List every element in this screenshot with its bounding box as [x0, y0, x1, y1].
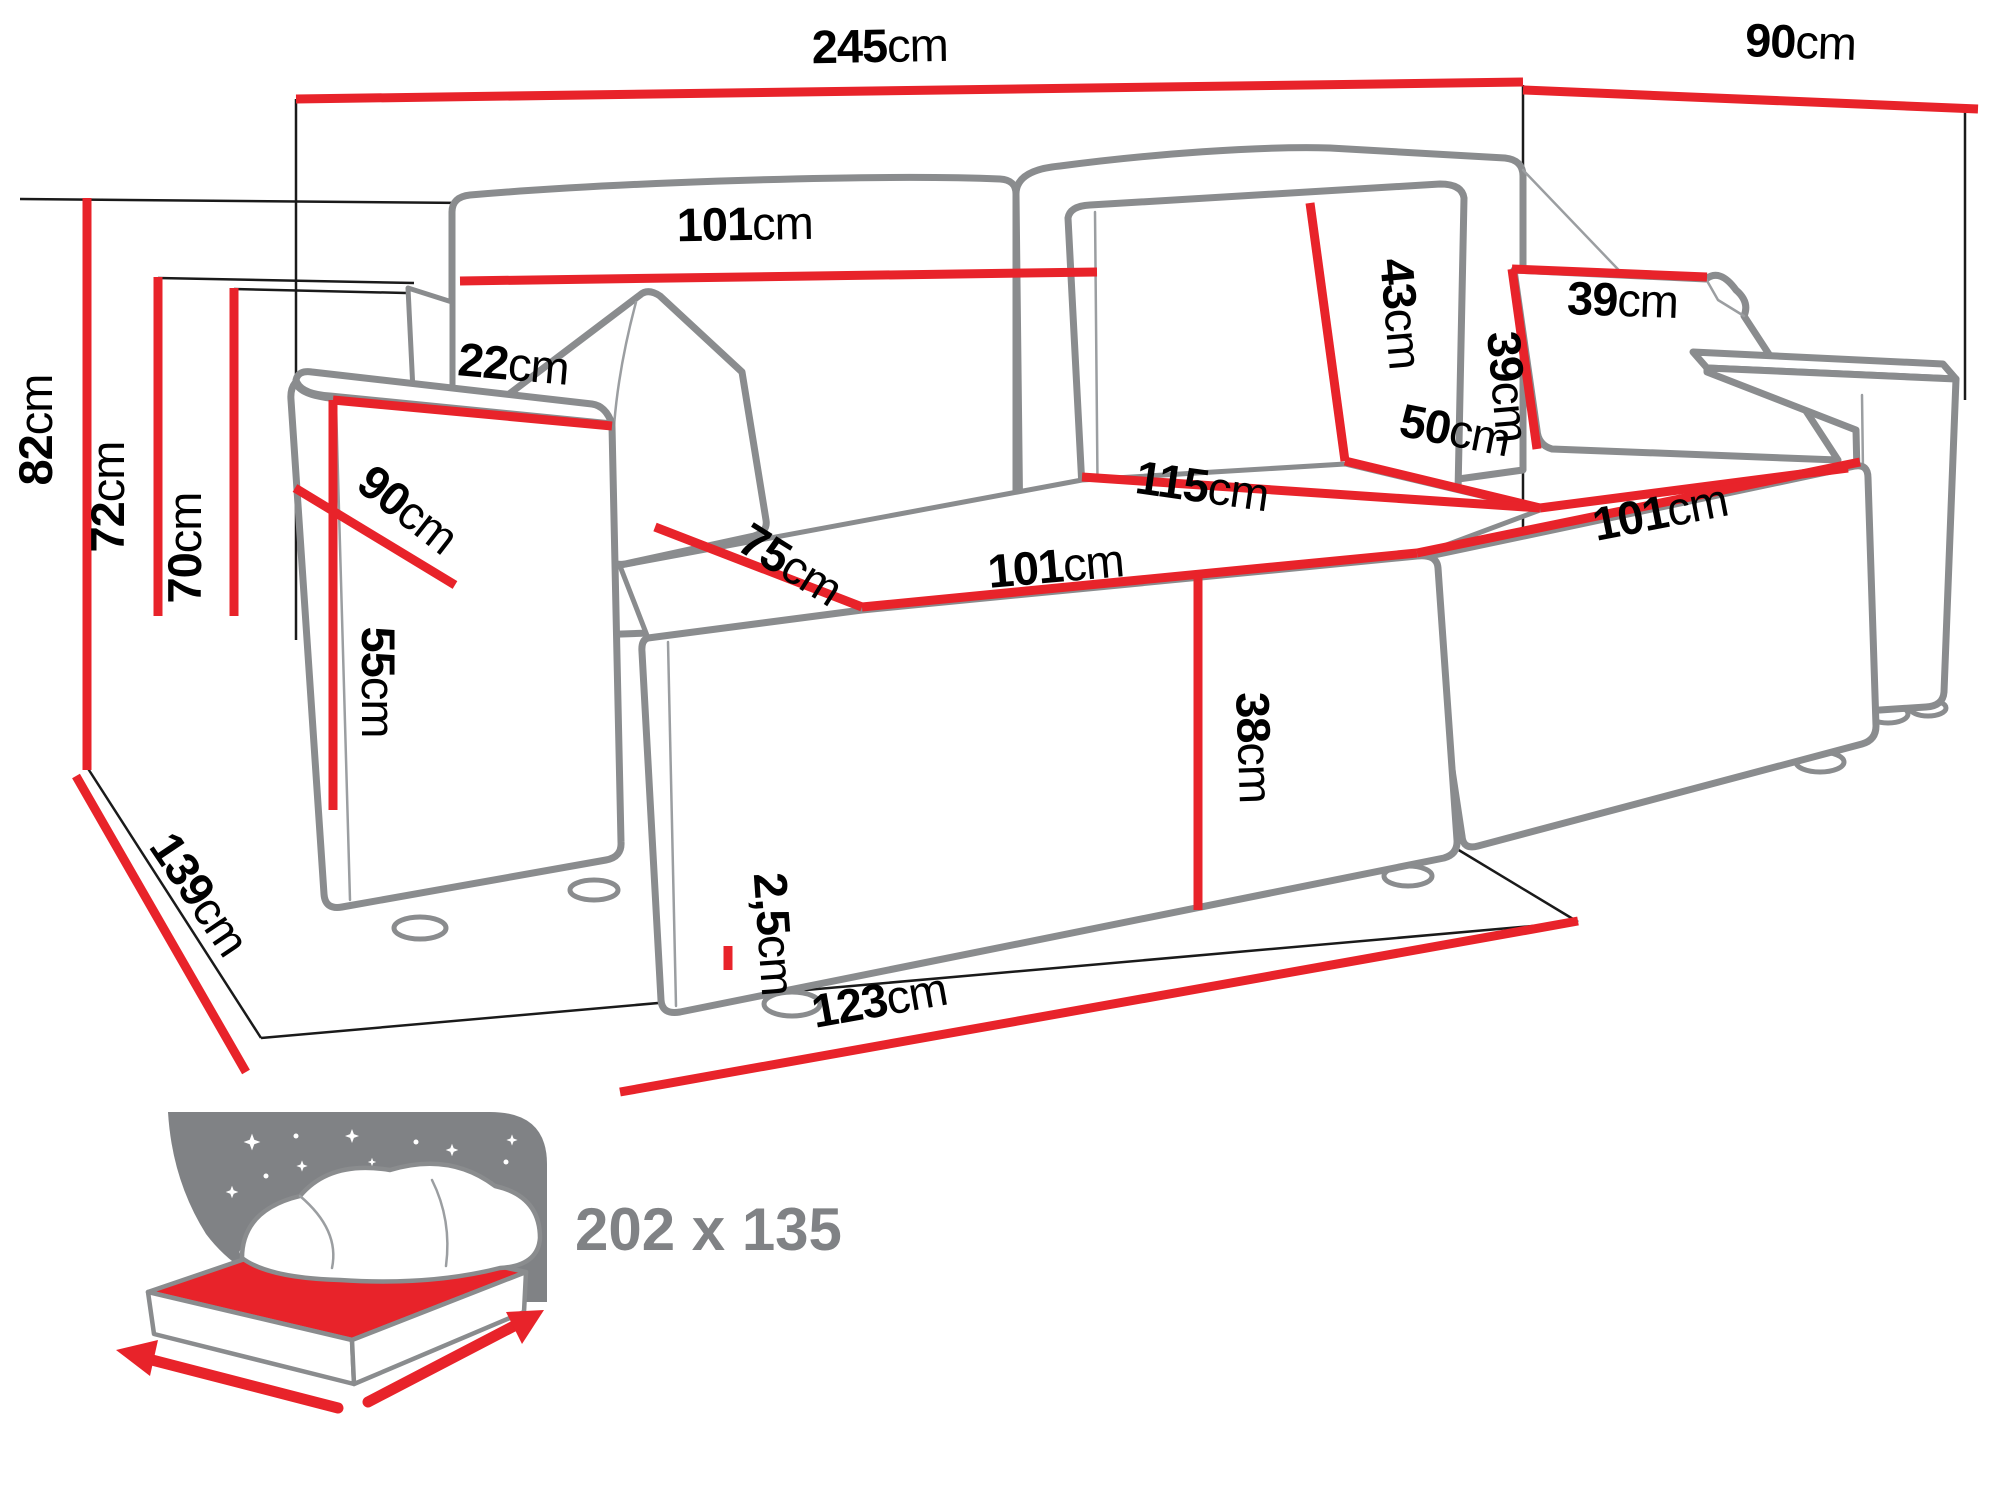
dim-unit: cm: [752, 196, 814, 250]
star-dot: [504, 1160, 509, 1165]
dim-value: 39: [1477, 329, 1534, 384]
left-armrest-body: [291, 382, 621, 907]
dim-value: 39: [1566, 271, 1618, 326]
dim-unit: cm: [1616, 273, 1678, 328]
dimension-line-overall-depth: [1523, 90, 1978, 109]
construction-horizontal-armrest: [234, 289, 406, 293]
dim-value: 70: [158, 553, 211, 603]
dim-unit: cm: [9, 375, 62, 436]
dim-unit: cm: [748, 933, 805, 997]
left-armrest-foot: [570, 880, 618, 900]
dimension-label-overall-depth: 90cm: [1744, 13, 1857, 70]
star-dot: [414, 1140, 419, 1145]
width-arrowhead: [116, 1340, 158, 1376]
dimension-label-leg-height: 2,5cm: [744, 871, 805, 997]
floor-edge-right: [1457, 849, 1578, 922]
left-armrest-foot: [394, 917, 446, 939]
dimension-label-height-seat-back: 70cm: [158, 493, 211, 604]
dim-unit: cm: [1061, 533, 1126, 591]
dim-unit: cm: [352, 677, 405, 738]
dim-value: 82: [9, 435, 62, 485]
sofa-dimensions-diagram: 245cm 90cm 82cm 72cm 70cm 101cm 22cm 90c…: [0, 0, 2000, 1500]
dimension-label-overall-width: 245cm: [811, 18, 948, 73]
diagram-canvas: 245cm 90cm 82cm 72cm 70cm 101cm 22cm 90c…: [0, 0, 2000, 1500]
dim-unit: cm: [1794, 15, 1856, 70]
dimension-line-overall-width: [296, 82, 1523, 99]
star-dot: [294, 1134, 299, 1139]
dim-value: 55: [352, 627, 405, 677]
dimension-label-armrest-top-width: 22cm: [456, 332, 571, 394]
construction-horizontal-backrest: [158, 278, 414, 283]
bed-icon: 202 x 135: [116, 1112, 842, 1408]
dim-value: 90: [1744, 13, 1796, 68]
dimension-label-height-backrest: 72cm: [81, 442, 134, 553]
dim-value: 22: [456, 332, 511, 389]
dim-unit: cm: [1205, 460, 1272, 521]
dimension-label-seat-height: 38cm: [1226, 691, 1283, 804]
dim-unit: cm: [81, 442, 134, 503]
dimension-label-height-total: 82cm: [9, 375, 62, 486]
dim-unit: cm: [887, 18, 949, 72]
dimension-label-backrest-width: 101cm: [676, 196, 813, 251]
dimension-label-back-cushion-height: 43cm: [1370, 256, 1432, 371]
sleeping-area-label: 202 x 135: [575, 1196, 842, 1263]
dim-value: 101: [985, 539, 1065, 598]
dimension-label-pillow-width: 39cm: [1566, 271, 1679, 328]
dim-unit: cm: [506, 337, 571, 395]
dim-value: 2,5: [744, 871, 801, 937]
dim-unit: cm: [1228, 741, 1283, 803]
dimension-label-armrest-height: 55cm: [352, 627, 405, 738]
dim-value: 72: [81, 502, 134, 552]
dim-value: 43: [1370, 256, 1427, 311]
dim-value: 115: [1133, 450, 1212, 513]
dim-unit: cm: [158, 493, 211, 554]
dim-value: 245: [811, 19, 887, 73]
dim-value: 101: [676, 197, 752, 251]
dim-unit: cm: [1375, 306, 1433, 371]
dim-unit: cm: [882, 962, 951, 1025]
star-dot: [264, 1174, 269, 1179]
dim-value: 38: [1226, 691, 1281, 743]
